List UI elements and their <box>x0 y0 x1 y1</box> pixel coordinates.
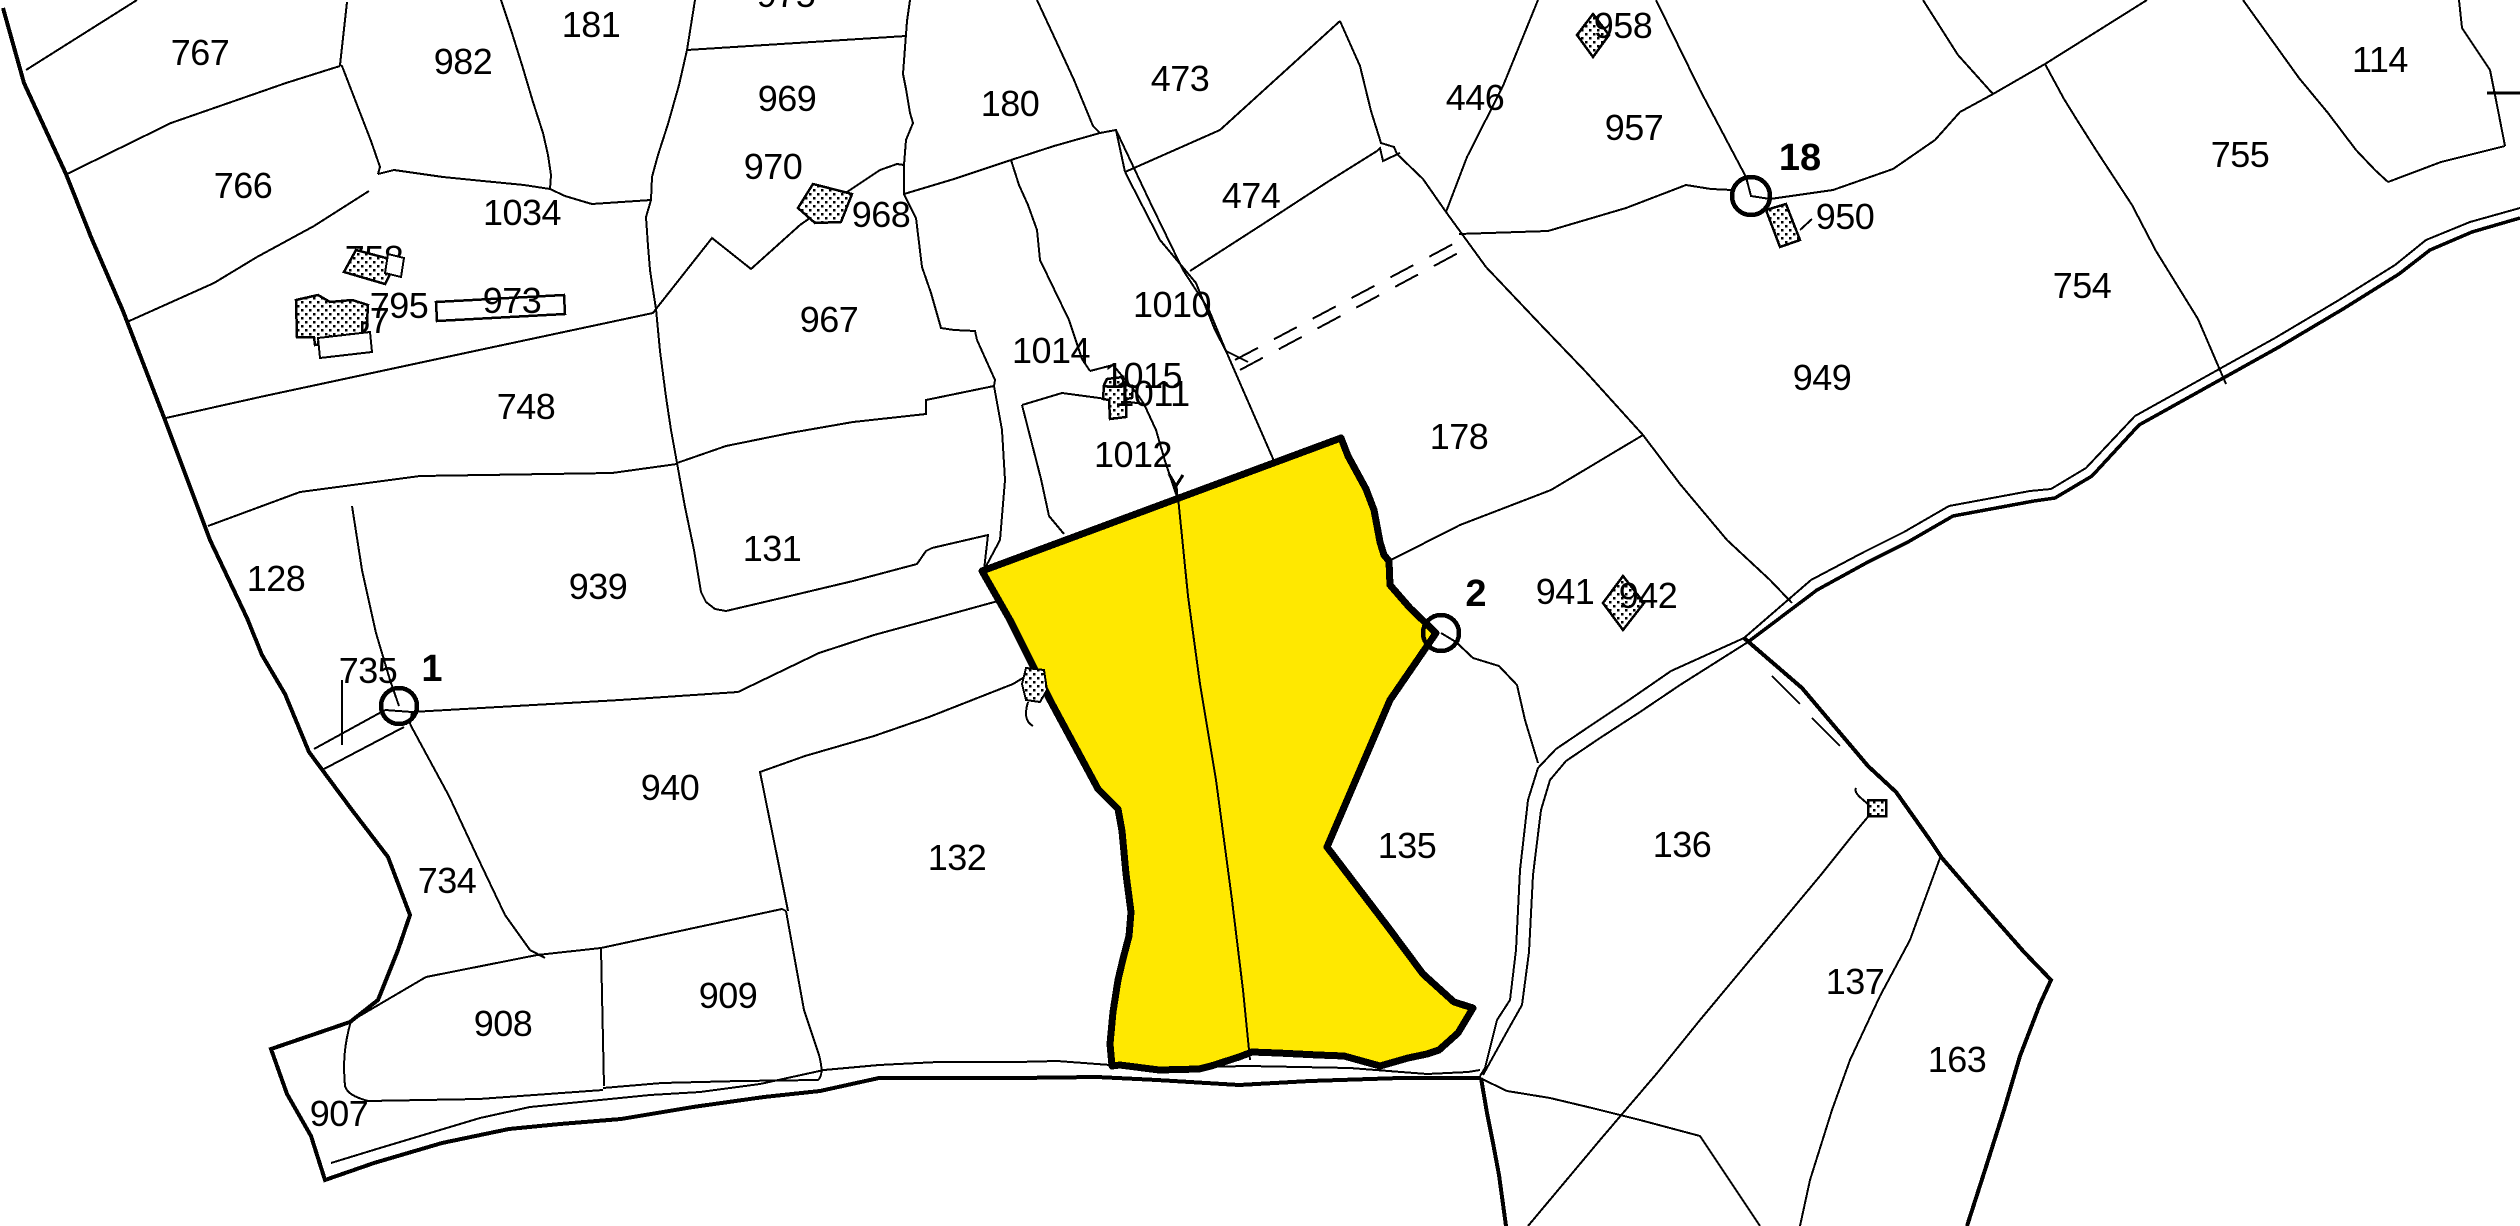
svg-text:1: 1 <box>421 648 442 690</box>
svg-text:135: 135 <box>1378 825 1437 866</box>
svg-text:473: 473 <box>1151 58 1210 99</box>
svg-text:1012: 1012 <box>1094 434 1172 475</box>
svg-text:949: 949 <box>1793 357 1852 398</box>
svg-text:1010: 1010 <box>1133 284 1211 325</box>
svg-text:907: 907 <box>310 1093 369 1134</box>
svg-text:137: 137 <box>1826 961 1885 1002</box>
svg-text:1011: 1011 <box>1114 373 1189 414</box>
svg-text:114: 114 <box>2352 39 2408 80</box>
svg-text:178: 178 <box>1430 416 1489 457</box>
svg-text:1034: 1034 <box>483 192 561 233</box>
svg-text:136: 136 <box>1653 824 1712 865</box>
svg-text:767: 767 <box>171 32 230 73</box>
svg-text:734: 734 <box>418 860 477 901</box>
svg-text:128: 128 <box>247 558 306 599</box>
svg-text:941: 941 <box>1536 571 1595 612</box>
svg-text:18: 18 <box>1779 137 1821 179</box>
svg-text:969: 969 <box>758 78 817 119</box>
svg-text:754: 754 <box>2053 265 2112 306</box>
svg-text:474: 474 <box>1222 175 1281 216</box>
svg-text:958: 958 <box>1594 5 1653 46</box>
svg-text:968: 968 <box>852 194 911 235</box>
svg-text:957: 957 <box>1605 107 1664 148</box>
svg-text:446: 446 <box>1446 77 1505 118</box>
svg-text:967: 967 <box>800 299 859 340</box>
svg-text:766: 766 <box>214 165 273 206</box>
svg-text:982: 982 <box>434 41 493 82</box>
svg-text:755: 755 <box>2211 134 2270 175</box>
svg-text:735: 735 <box>339 650 398 691</box>
svg-text:975: 975 <box>757 0 816 15</box>
svg-text:748: 748 <box>497 386 556 427</box>
svg-text:940: 940 <box>641 767 700 808</box>
svg-text:908: 908 <box>474 1003 533 1044</box>
svg-text:970: 970 <box>744 146 803 187</box>
svg-text:950: 950 <box>1816 196 1875 237</box>
svg-text:909: 909 <box>699 975 758 1016</box>
svg-text:973: 973 <box>483 280 542 321</box>
svg-text:1014: 1014 <box>1012 330 1090 371</box>
svg-text:181: 181 <box>562 4 621 45</box>
svg-text:2: 2 <box>1465 573 1486 615</box>
svg-text:795: 795 <box>370 285 429 326</box>
svg-text:939: 939 <box>569 566 628 607</box>
svg-text:132: 132 <box>928 837 987 878</box>
svg-text:180: 180 <box>981 83 1040 124</box>
svg-text:163: 163 <box>1928 1039 1987 1080</box>
svg-text:131: 131 <box>743 528 802 569</box>
svg-text:942: 942 <box>1619 575 1678 616</box>
